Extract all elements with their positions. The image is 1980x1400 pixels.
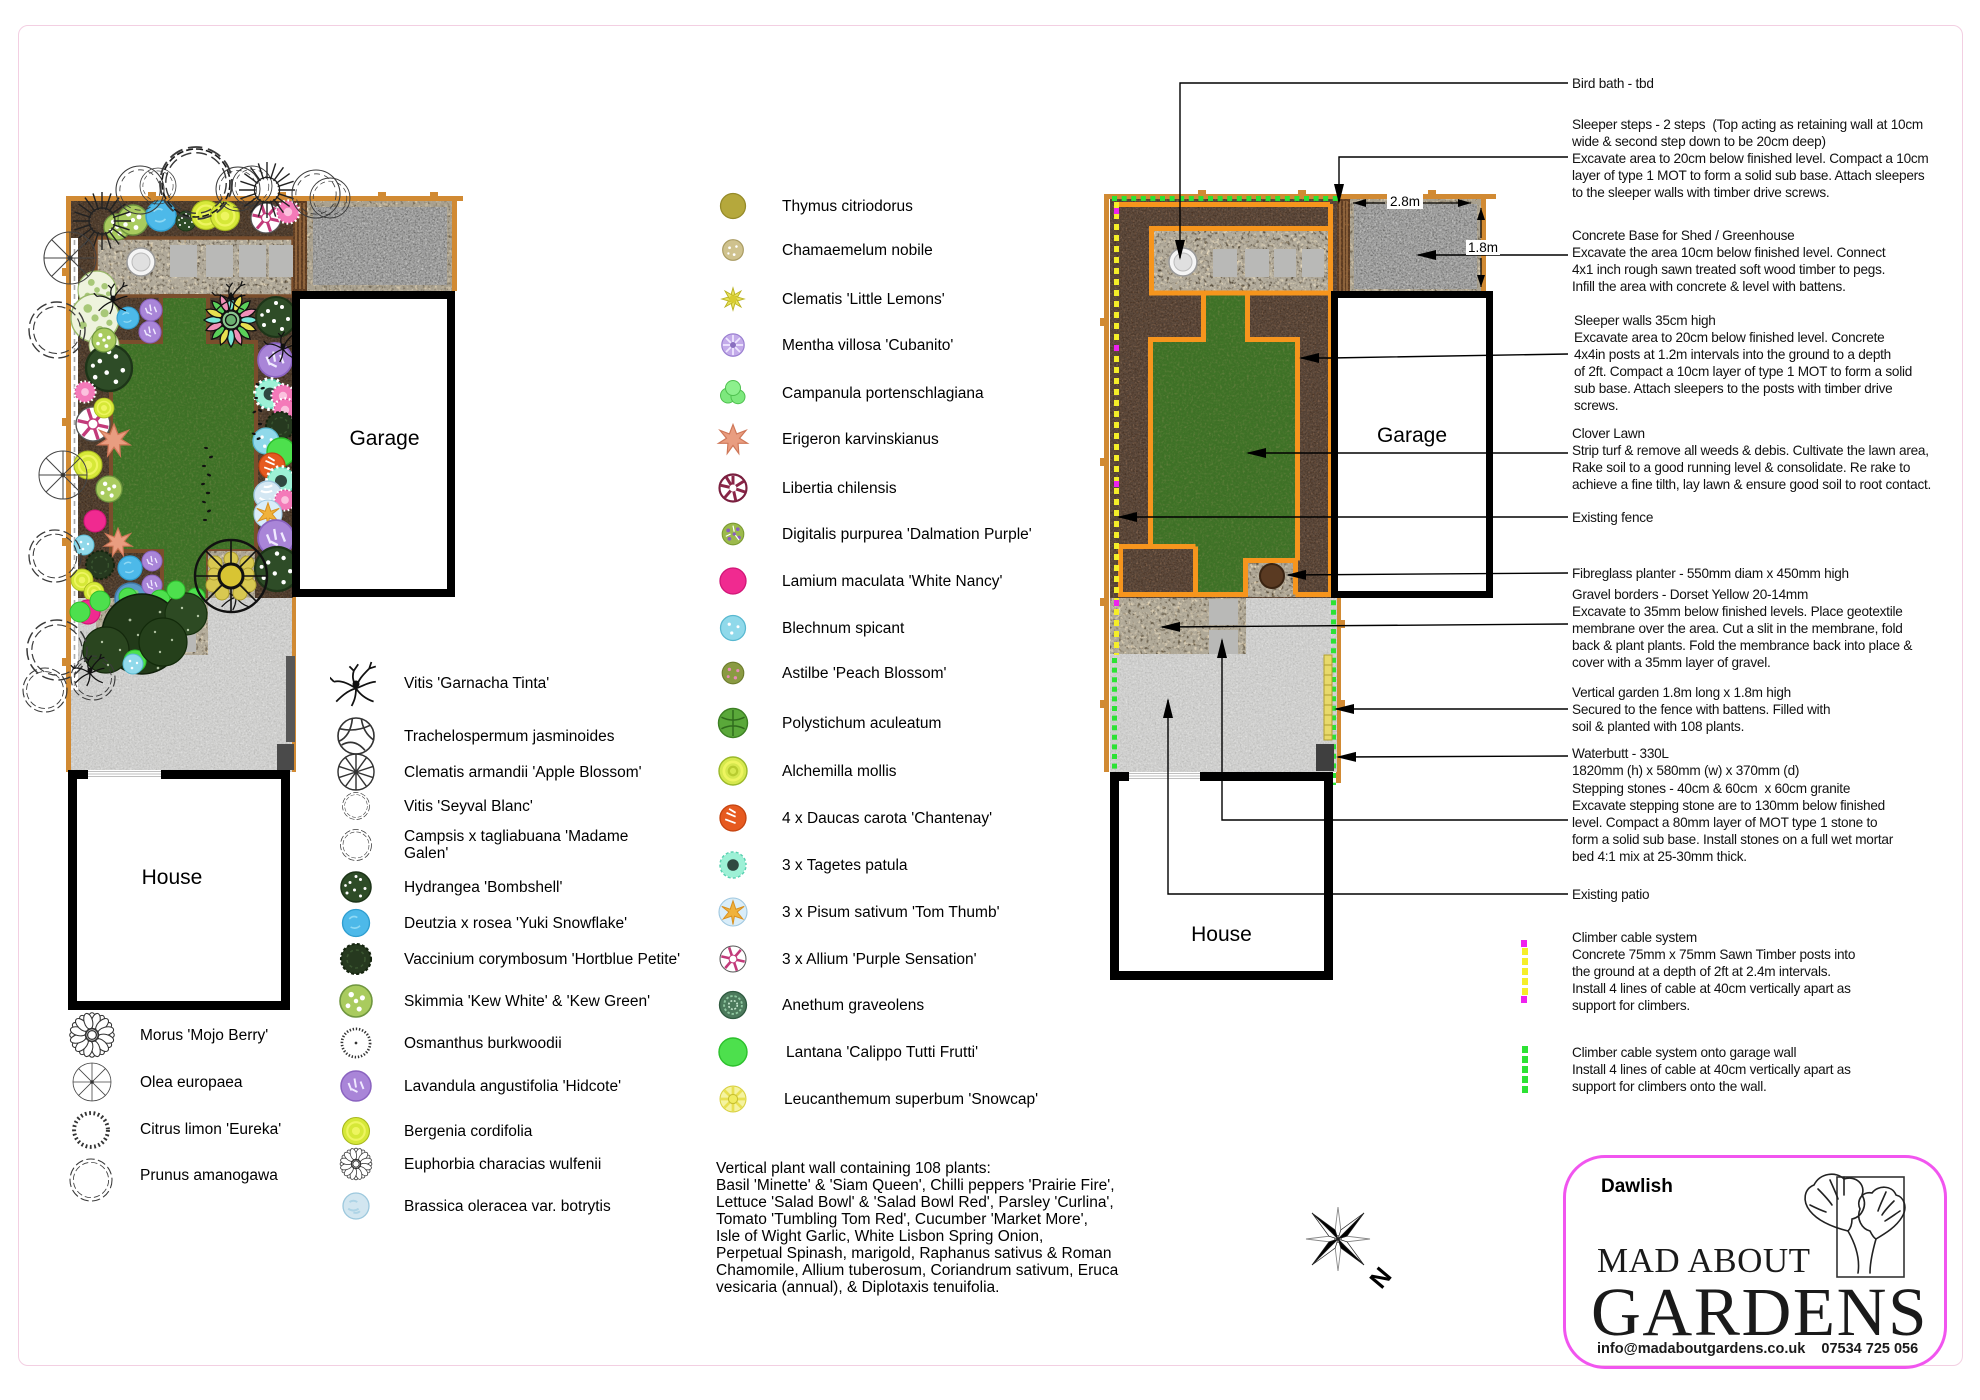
svg-text:N: N [1364, 1262, 1397, 1294]
